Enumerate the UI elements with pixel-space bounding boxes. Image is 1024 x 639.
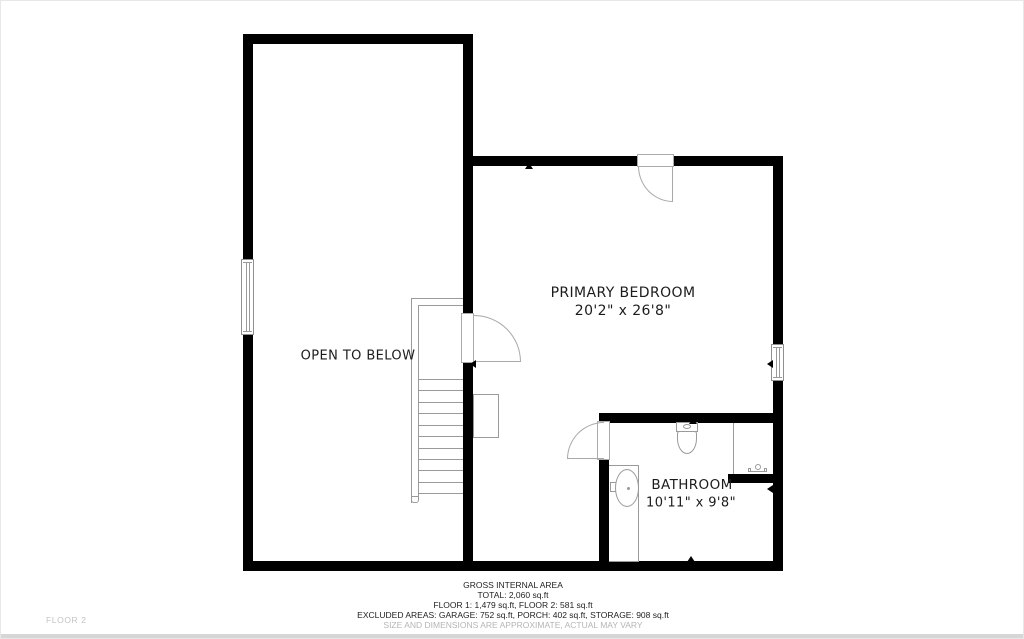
stair-tread [419, 459, 463, 460]
total-area: TOTAL: 2,060 sq.ft [1, 590, 1024, 600]
floor-areas: FLOOR 1: 1,479 sq.ft, FLOOR 2: 581 sq.ft [1, 600, 1024, 610]
room-label-bathroom: BATHROOM [651, 477, 732, 493]
marker-triangle [767, 360, 773, 368]
wall-vanity-counter [728, 474, 773, 483]
stair-tread [419, 390, 463, 391]
bedroom-stair-door-opening [461, 313, 474, 363]
marker-triangle [525, 163, 533, 169]
stair-banister-cap [411, 496, 419, 503]
marker-triangle [687, 556, 695, 562]
marker-triangle [767, 485, 773, 493]
disclaimer-text: SIZE AND DIMENSIONS ARE APPROXIMATE, ACT… [1, 620, 1024, 630]
gross-internal-area-title: GROSS INTERNAL AREA [1, 580, 1024, 590]
room-label-open-to-below: OPEN TO BELOW [301, 349, 416, 364]
closet-nook [473, 394, 499, 438]
wall-bottom [243, 561, 783, 571]
stair-tread [419, 436, 463, 437]
window-left-icon [241, 259, 254, 335]
stair-tread [419, 470, 463, 471]
stair-tread [419, 482, 463, 483]
wall-top-left-room [243, 34, 473, 44]
area-summary: GROSS INTERNAL AREA TOTAL: 2,060 sq.ft F… [1, 580, 1024, 630]
bedroom-stair-door-arc-icon [474, 315, 521, 362]
wall-middle [463, 34, 473, 571]
excluded-areas: EXCLUDED AREAS: GARAGE: 752 sq.ft, PORCH… [1, 610, 1024, 620]
room-label-primary-bedroom: PRIMARY BEDROOM [551, 285, 696, 301]
wall-bedroom-top [463, 156, 783, 166]
stair-tread [419, 402, 463, 403]
room-dim-bathroom: 10'11" x 9'8" [646, 496, 736, 511]
stair-tread [419, 425, 463, 426]
stair-tread [419, 448, 463, 449]
stair-tread [419, 413, 463, 414]
bedroom-top-door-arc-icon [638, 166, 673, 202]
stair-tread [419, 493, 463, 494]
stair-tread [419, 379, 463, 380]
room-dim-primary-bedroom: 20'2" x 26'8" [575, 303, 671, 319]
bottom-edge-strip [1, 634, 1024, 639]
bathroom-door-arc-icon [567, 422, 604, 459]
marker-triangle [689, 418, 697, 424]
marker-triangle [470, 360, 476, 368]
floor-label: FLOOR 2 [46, 615, 87, 625]
floorplan-canvas: OPEN TO BELOW PRIMARY BEDROOM 20'2" x 26… [0, 0, 1024, 639]
